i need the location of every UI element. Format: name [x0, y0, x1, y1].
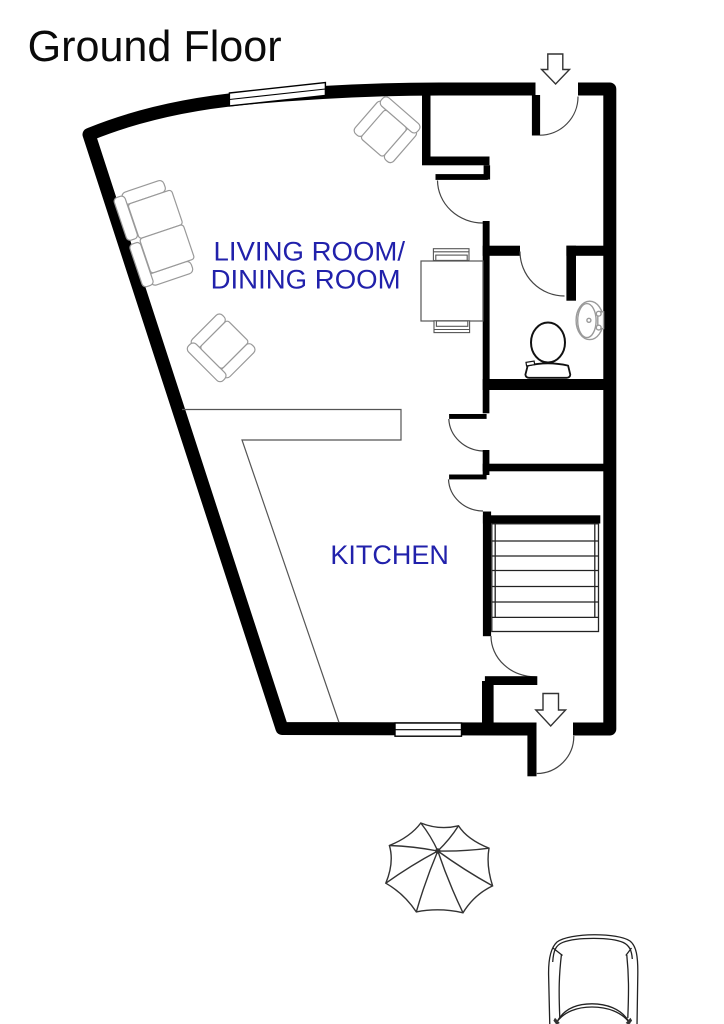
svg-text:LIVING ROOM/: LIVING ROOM/ — [214, 236, 406, 266]
svg-text:Ground Floor: Ground Floor — [28, 23, 282, 71]
svg-text:KITCHEN: KITCHEN — [330, 540, 449, 570]
svg-text:DINING ROOM: DINING ROOM — [211, 264, 401, 294]
